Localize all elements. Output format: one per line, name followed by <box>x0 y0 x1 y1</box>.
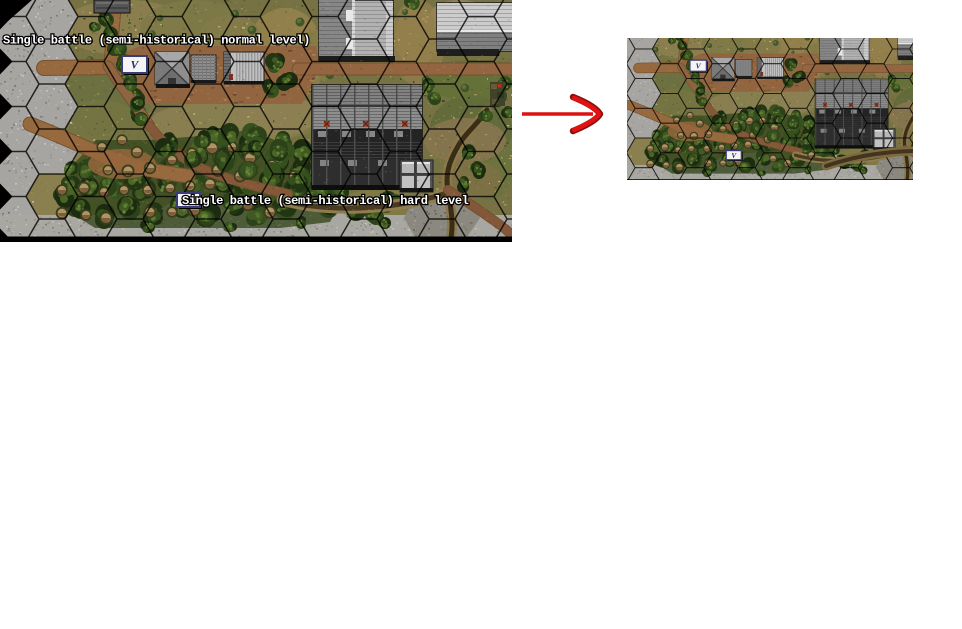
svg-text:Single battle (semi-historical: Single battle (semi-historical) normal l… <box>3 34 310 48</box>
svg-text:Single battle (semi-historical: Single battle (semi-historical) hard lev… <box>182 194 469 208</box>
